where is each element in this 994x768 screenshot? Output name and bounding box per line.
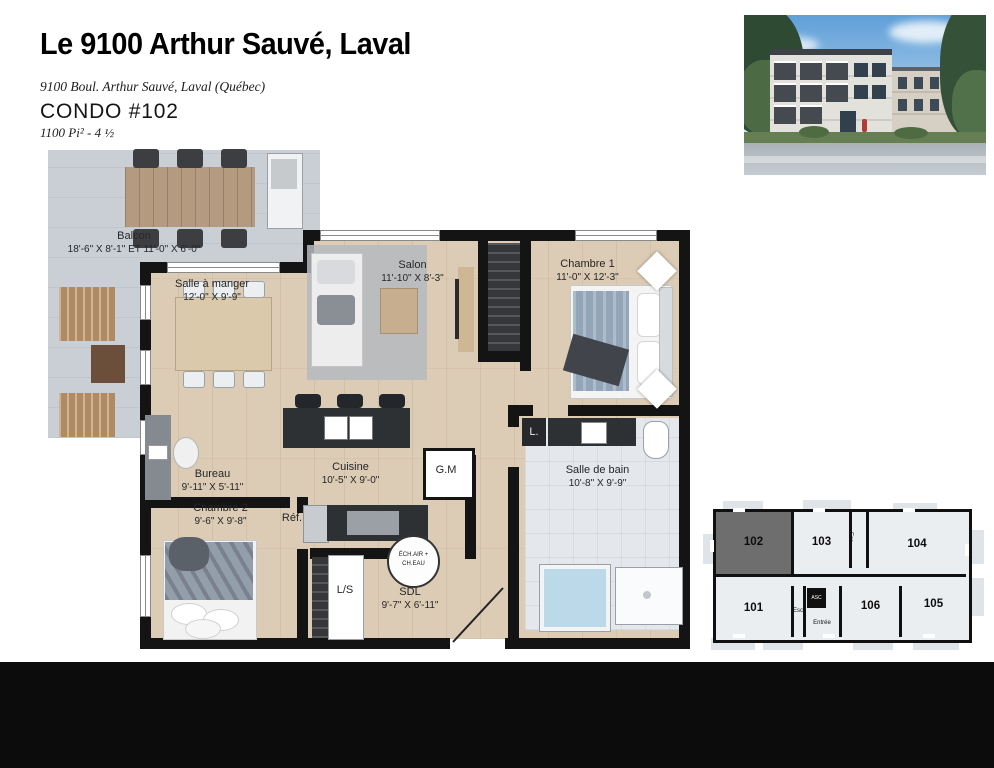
room-label-salle-de-bain: Salle de bain 10'-8" X 9'-9" [550, 463, 645, 490]
keyplan: ASC 102 103 104 101 106 105 Esc Esc Entr… [703, 500, 993, 652]
sofa-cushion [317, 260, 355, 284]
window [854, 63, 868, 77]
keyplan-unit-label-105: 105 [902, 598, 965, 610]
shower-drain [643, 591, 651, 599]
window [575, 230, 657, 241]
keyplan-entrance-label: Entrée [802, 620, 842, 626]
sink [349, 416, 373, 440]
balcony-cell [774, 83, 796, 102]
office-chair [173, 437, 199, 469]
laptop [148, 445, 168, 460]
wall [478, 351, 531, 362]
condo-number: CONDO #102 [40, 100, 179, 124]
window [914, 77, 923, 89]
room-label-chambre-1: Chambre 1 11'-0" X 12'-3" [540, 257, 635, 284]
balcony-cell [800, 105, 822, 124]
keyplan-window-tick [903, 508, 915, 512]
keyplan-wall [803, 586, 806, 637]
shrub [799, 126, 829, 138]
sink [324, 416, 348, 440]
tv-console [458, 267, 474, 352]
balcony-cell [800, 61, 822, 80]
window [872, 85, 886, 99]
patio-side-table [91, 345, 125, 383]
balcony-cell [774, 105, 796, 124]
window [140, 350, 151, 385]
window [930, 99, 939, 111]
wall [505, 638, 690, 649]
bar-stool [295, 394, 321, 408]
balcony-cell [826, 61, 848, 80]
keyplan-elevator: ASC [807, 588, 826, 608]
floorplan: Réf. G.M L. [45, 145, 700, 657]
keyplan-window-tick [823, 634, 835, 638]
window [914, 99, 923, 111]
keyplan-stairs-label: Esc [793, 608, 803, 614]
footer-bar: JSCO. infolocation@jsco.ca Tél.: 438-835… [0, 662, 994, 768]
window [930, 77, 939, 89]
mechanical-label-line1: ÉCH.AIR + [399, 552, 429, 558]
keyplan-unit-label-102: 102 [716, 536, 791, 548]
lounge-chair [59, 393, 115, 437]
shrub [894, 127, 928, 139]
wall [478, 241, 488, 355]
keyplan-window-tick [813, 508, 825, 512]
room-label-salle-a-manger: Salle à manger 12'-0" X 9'-9" [142, 277, 282, 304]
balcony-cell [774, 61, 796, 80]
keyplan-unit-label-106: 106 [842, 600, 899, 612]
mechanical-label-line2: CH.EAU [402, 561, 425, 567]
room-label-chambre-2: Chambre 2 9'-6" X 9'-8" [173, 501, 268, 528]
window [854, 85, 868, 99]
street-reflection [744, 156, 986, 163]
page-title: Le 9100 Arthur Sauvé, Laval [40, 26, 411, 62]
keyplan-stairs-label: Esc [847, 532, 853, 542]
condo-size: 1100 Pi² - 4 ½ [40, 125, 114, 141]
keyplan-window-tick [923, 634, 935, 638]
balcony-cell [826, 83, 848, 102]
bed-throw [169, 537, 209, 571]
room-label-bureau: Bureau 9'-11" X 5'-11" [165, 467, 260, 494]
mechanical-unit: ÉCH.AIR + CH.EAU [387, 535, 440, 588]
patio-chair [221, 149, 247, 168]
bathtub [540, 565, 610, 631]
window [167, 262, 280, 273]
dining-chair [213, 371, 235, 388]
window [898, 99, 907, 111]
patio-table [125, 167, 255, 227]
fridge-label: Réf. [267, 511, 317, 525]
linen-label: L. [522, 425, 546, 439]
wall [508, 405, 519, 427]
sofa-cushion [317, 295, 355, 325]
bathroom-sink [581, 422, 607, 444]
keyplan-wall [899, 586, 902, 637]
person [862, 119, 867, 132]
keyplan-window-tick [965, 544, 969, 556]
address-line: 9100 Boul. Arthur Sauvé, Laval (Québec) [40, 79, 265, 95]
keyplan-unit-label-101: 101 [716, 602, 791, 614]
room-label-salon: Salon 11'-10" X 8'-3" [365, 258, 460, 285]
window [140, 555, 151, 617]
tree-icon [952, 70, 986, 140]
closet-wardrobe [488, 243, 520, 353]
dining-table [175, 297, 272, 371]
building-photo [744, 15, 986, 175]
coffee-table [380, 288, 418, 334]
patio-chair [177, 149, 203, 168]
patio-chair [133, 149, 159, 168]
keyplan-window-tick [733, 508, 745, 512]
toilet [643, 421, 669, 459]
room-label-sdl: SDL 9'-7" X 6'-11" [355, 585, 465, 612]
keyplan-window-tick [733, 634, 745, 638]
wall [297, 549, 308, 649]
bar-stool [337, 394, 363, 408]
room-label-cuisine: Cuisine 10'-5" X 9'-0" [303, 460, 398, 487]
lounge-chair [59, 287, 115, 341]
room-label-balcon: Balcon 18'-6" X 8'-1" ET 11'-0" X 6'-0" [45, 229, 223, 256]
brochure-page: Le 9100 Arthur Sauvé, Laval 9100 Boul. A… [0, 0, 994, 768]
dining-chair [243, 371, 265, 388]
tv [455, 279, 459, 339]
dining-chair [183, 371, 205, 388]
keyplan-unit-label-103: 103 [794, 536, 849, 548]
window [898, 77, 907, 89]
keyplan-wall [716, 574, 966, 577]
keyplan-unit-label-104: 104 [869, 538, 965, 550]
wall [568, 405, 690, 416]
stove [347, 511, 399, 535]
pillow [637, 293, 661, 337]
balcony-cell [800, 83, 822, 102]
window [872, 63, 886, 77]
patio-chair [221, 229, 247, 248]
pantry-label: G.M [423, 463, 469, 477]
window [320, 230, 440, 241]
bbq-grill-lid [271, 159, 297, 189]
keyplan-window-tick [710, 540, 714, 552]
pillow [185, 619, 221, 639]
bar-stool [379, 394, 405, 408]
